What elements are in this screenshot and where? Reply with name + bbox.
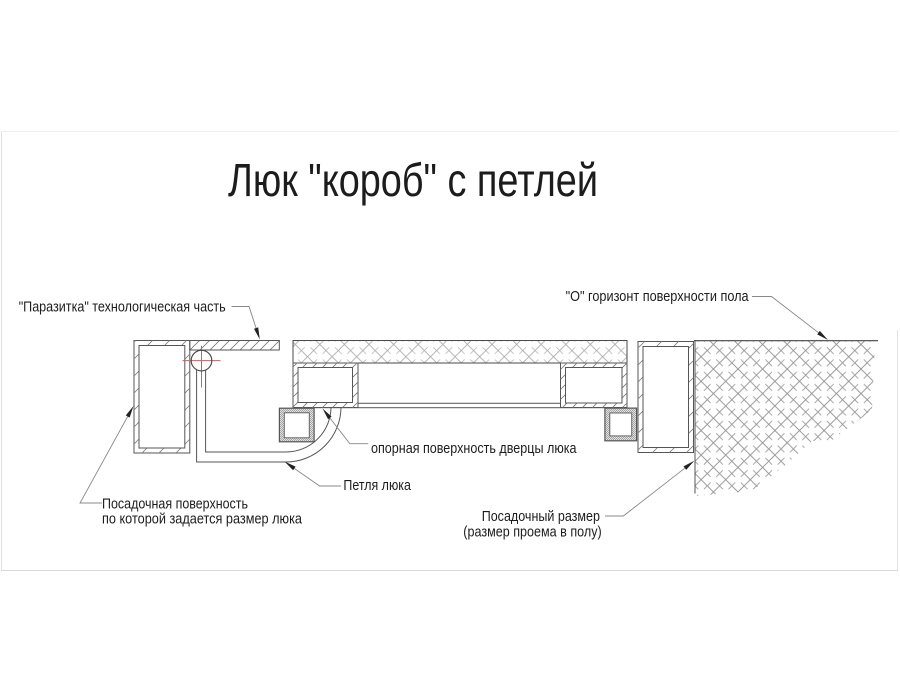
svg-text:Петля люка: Петля люка [343, 477, 411, 494]
svg-text:"Паразитка" технологическая ча: "Паразитка" технологическая часть [19, 298, 226, 315]
svg-text:опорная поверхность дверцы люк: опорная поверхность дверцы люка [371, 440, 577, 457]
svg-text:Люк "короб" с петлей: Люк "короб" с петлей [228, 154, 598, 206]
svg-text:по которой задается размер люк: по которой задается размер люка [102, 511, 303, 528]
svg-text:(размер проема в полу): (размер проема в полу) [463, 524, 601, 541]
svg-text:"О" горизонт поверхности пола: "О" горизонт поверхности пола [566, 288, 750, 305]
